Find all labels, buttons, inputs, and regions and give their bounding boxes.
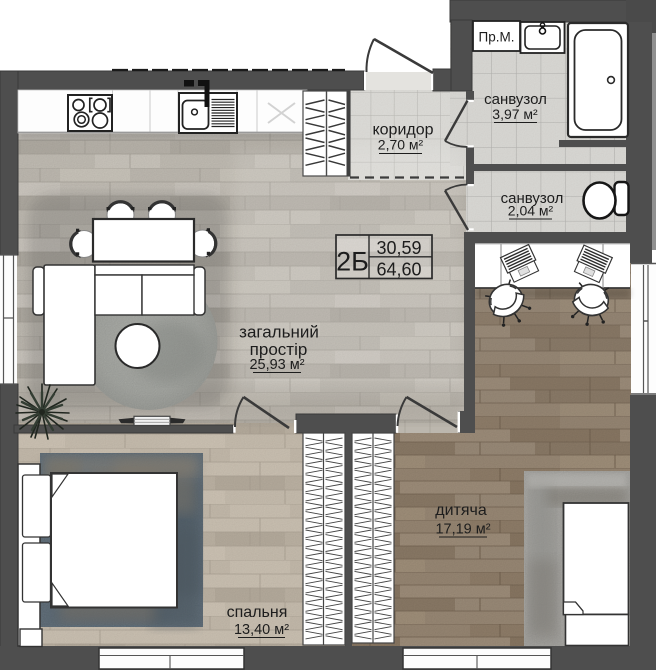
svg-text:25,93 м²: 25,93 м² xyxy=(249,357,304,373)
svg-text:2,04 м²: 2,04 м² xyxy=(508,203,554,219)
svg-text:2Б: 2Б xyxy=(336,247,369,277)
svg-text:спальня: спальня xyxy=(227,604,288,621)
svg-text:дитяча: дитяча xyxy=(435,502,487,519)
svg-text:64,60: 64,60 xyxy=(376,260,421,280)
svg-text:2,70 м²: 2,70 м² xyxy=(378,137,424,153)
svg-text:30,59: 30,59 xyxy=(376,238,421,258)
svg-text:13,40 м²: 13,40 м² xyxy=(234,622,289,638)
svg-text:загальний: загальний xyxy=(239,323,319,342)
svg-text:17,19 м²: 17,19 м² xyxy=(435,522,490,538)
svg-text:3,97 м²: 3,97 м² xyxy=(492,106,538,122)
svg-text:Пр.М.: Пр.М. xyxy=(479,30,515,45)
